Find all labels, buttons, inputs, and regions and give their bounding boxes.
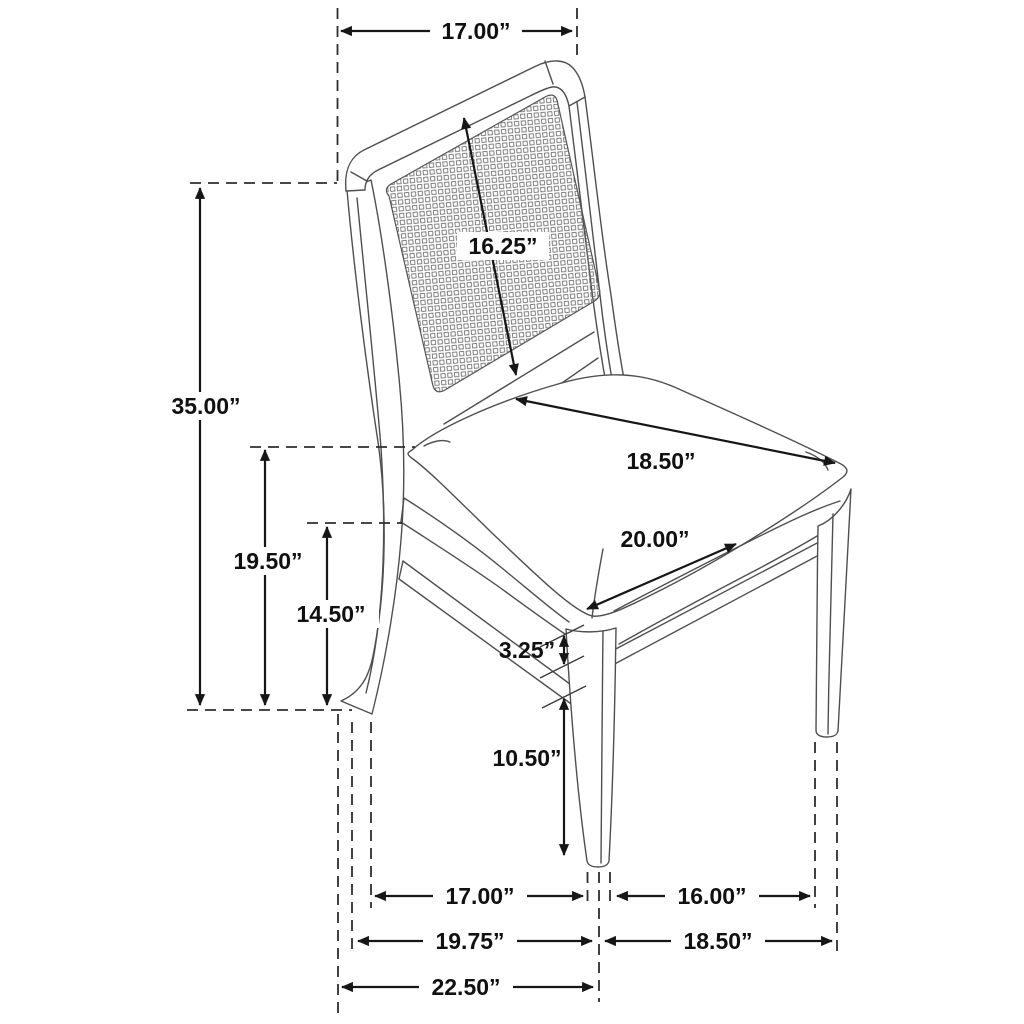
overall-height-label: 35.00” [171, 393, 240, 419]
side-legs-inner-span-label: 17.00” [445, 883, 514, 909]
chair-drawing [341, 61, 851, 867]
chair-dimension-diagram: 17.00” 16.25” 35.00” 19.50” 14.50” 18.50… [0, 0, 1024, 1024]
seat-back-height-label: 19.50” [233, 548, 302, 574]
chair-front-left-leg [566, 628, 616, 867]
chair-seat-cushion [408, 375, 847, 616]
dimension-diagram-page: 17.00” 16.25” 35.00” 19.50” 14.50” 18.50… [0, 0, 1024, 1024]
back-width-label: 17.00” [441, 18, 510, 44]
backrest-height-label: 16.25” [468, 233, 537, 259]
side-legs-span-label: 19.75” [435, 928, 504, 954]
rail-to-stretcher-label: 3.25” [499, 637, 555, 663]
overall-depth-label: 22.50” [431, 974, 500, 1000]
front-legs-span-label: 18.50” [683, 928, 752, 954]
front-legs-inner-span-label: 16.00” [677, 883, 746, 909]
seat-front-height-label: 14.50” [296, 601, 365, 627]
seat-depth-label: 18.50” [626, 448, 695, 474]
chair-front-right-leg [816, 489, 851, 737]
seat-width-label: 20.00” [620, 526, 689, 552]
chair-side-stretcher-end-cap [399, 561, 403, 579]
stretcher-to-floor-label: 10.50” [492, 745, 561, 771]
